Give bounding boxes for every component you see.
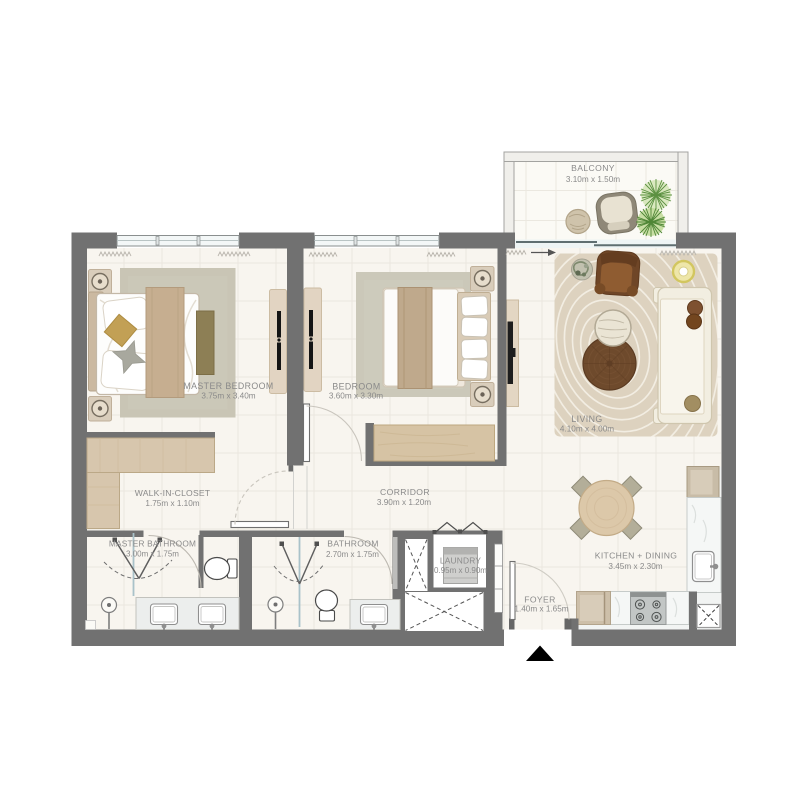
svg-text:MASTER BEDROOM: MASTER BEDROOM — [183, 381, 273, 391]
svg-text:CORRIDOR: CORRIDOR — [380, 487, 430, 497]
svg-text:3.10m x 1.50m: 3.10m x 1.50m — [566, 175, 620, 184]
svg-text:0.95m x 0.90m: 0.95m x 0.90m — [434, 566, 487, 575]
svg-text:3.75m x 3.40m: 3.75m x 3.40m — [201, 392, 255, 401]
svg-text:1.75m x 1.10m: 1.75m x 1.10m — [145, 499, 199, 508]
svg-text:3.45m x 2.30m: 3.45m x 2.30m — [608, 562, 662, 571]
svg-text:2.70m x 1.75m: 2.70m x 1.75m — [326, 550, 379, 559]
svg-text:BEDROOM: BEDROOM — [332, 382, 380, 392]
svg-text:3.60m x 3.30m: 3.60m x 3.30m — [329, 392, 383, 401]
svg-text:KITCHEN + DINING: KITCHEN + DINING — [595, 551, 677, 561]
svg-text:3.90m x 1.20m: 3.90m x 1.20m — [377, 498, 431, 507]
svg-text:WALK-IN-CLOSET: WALK-IN-CLOSET — [135, 488, 211, 498]
svg-text:3.00m x 1.75m: 3.00m x 1.75m — [126, 550, 179, 559]
svg-text:BATHROOM: BATHROOM — [327, 539, 378, 549]
svg-text:LAUNDRY: LAUNDRY — [440, 556, 481, 566]
svg-text:4.10m x 4.00m: 4.10m x 4.00m — [560, 425, 614, 434]
svg-text:FOYER: FOYER — [524, 595, 556, 605]
svg-text:1.40m x 1.65m: 1.40m x 1.65m — [514, 605, 568, 614]
svg-text:MASTER BATHROOM: MASTER BATHROOM — [109, 539, 196, 549]
svg-text:LIVING: LIVING — [571, 414, 602, 424]
svg-text:BALCONY: BALCONY — [571, 163, 615, 173]
